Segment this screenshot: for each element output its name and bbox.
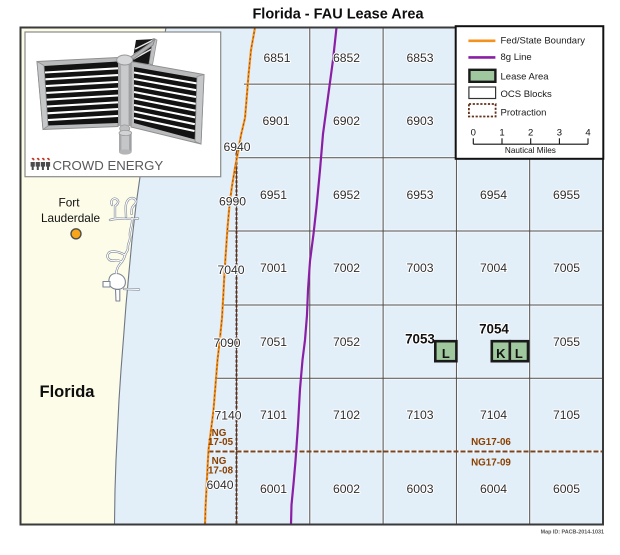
svg-text:17-08: 17-08 (208, 466, 234, 477)
svg-text:7101: 7101 (260, 408, 287, 422)
svg-text:7090: 7090 (213, 336, 240, 350)
svg-text:NG17-09: NG17-09 (471, 457, 511, 468)
svg-text:2: 2 (528, 128, 533, 139)
svg-text:6952: 6952 (333, 188, 360, 202)
svg-text:7104: 7104 (480, 408, 507, 422)
svg-text:L: L (442, 346, 450, 361)
svg-text:7103: 7103 (406, 408, 433, 422)
svg-text:8g Line: 8g Line (501, 52, 532, 63)
svg-text:7040: 7040 (217, 263, 244, 277)
svg-text:Lauderdale: Lauderdale (41, 211, 100, 225)
svg-text:Protraction: Protraction (501, 108, 547, 119)
svg-text:7005: 7005 (553, 261, 580, 275)
svg-text:7052: 7052 (333, 335, 360, 349)
svg-text:7140: 7140 (214, 408, 241, 422)
svg-text:6951: 6951 (260, 188, 287, 202)
svg-text:7001: 7001 (260, 261, 287, 275)
svg-text:6005: 6005 (553, 482, 580, 496)
svg-text:7002: 7002 (333, 261, 360, 275)
svg-text:6901: 6901 (262, 114, 289, 128)
svg-text:6940: 6940 (223, 140, 250, 154)
svg-text:Fort: Fort (59, 196, 81, 210)
svg-text:7004: 7004 (480, 261, 507, 275)
svg-text:7053: 7053 (405, 332, 435, 347)
svg-text:NG17-06: NG17-06 (471, 437, 511, 448)
svg-text:6852: 6852 (333, 51, 360, 65)
svg-text:Florida: Florida (39, 383, 95, 401)
svg-text:CROWD ENERGY: CROWD ENERGY (53, 158, 164, 173)
svg-text:6953: 6953 (406, 188, 433, 202)
svg-text:6903: 6903 (406, 114, 433, 128)
svg-text:6851: 6851 (263, 51, 290, 65)
svg-text:Florida - FAU Lease Area: Florida - FAU Lease Area (252, 7, 424, 23)
svg-text:7054: 7054 (479, 322, 509, 337)
svg-text:6990: 6990 (219, 195, 246, 209)
svg-text:3: 3 (557, 128, 562, 139)
svg-text:K: K (496, 346, 506, 361)
svg-text:6902: 6902 (333, 114, 360, 128)
svg-text:1: 1 (499, 128, 504, 139)
svg-text:Map ID: PACB-2014-1031: Map ID: PACB-2014-1031 (541, 530, 604, 536)
svg-text:6004: 6004 (480, 482, 507, 496)
svg-text:Fed/State Boundary: Fed/State Boundary (501, 36, 586, 47)
svg-text:6040: 6040 (206, 478, 233, 492)
svg-text:6001: 6001 (260, 482, 287, 496)
svg-text:0: 0 (471, 128, 476, 139)
svg-text:17-05: 17-05 (208, 437, 234, 448)
svg-text:7055: 7055 (553, 335, 580, 349)
svg-text:6955: 6955 (553, 188, 580, 202)
svg-text:6002: 6002 (333, 482, 360, 496)
svg-text:7003: 7003 (406, 261, 433, 275)
svg-text:6003: 6003 (406, 482, 433, 496)
svg-text:4: 4 (585, 128, 590, 139)
svg-text:Nautical Miles: Nautical Miles (505, 146, 556, 155)
svg-text:7051: 7051 (260, 335, 287, 349)
svg-text:7105: 7105 (553, 408, 580, 422)
svg-text:Lease Area: Lease Area (501, 71, 550, 82)
svg-text:6853: 6853 (406, 51, 433, 65)
svg-text:6954: 6954 (480, 188, 507, 202)
svg-text:L: L (515, 346, 523, 361)
svg-text:OCS Blocks: OCS Blocks (501, 89, 552, 100)
svg-text:7102: 7102 (333, 408, 360, 422)
